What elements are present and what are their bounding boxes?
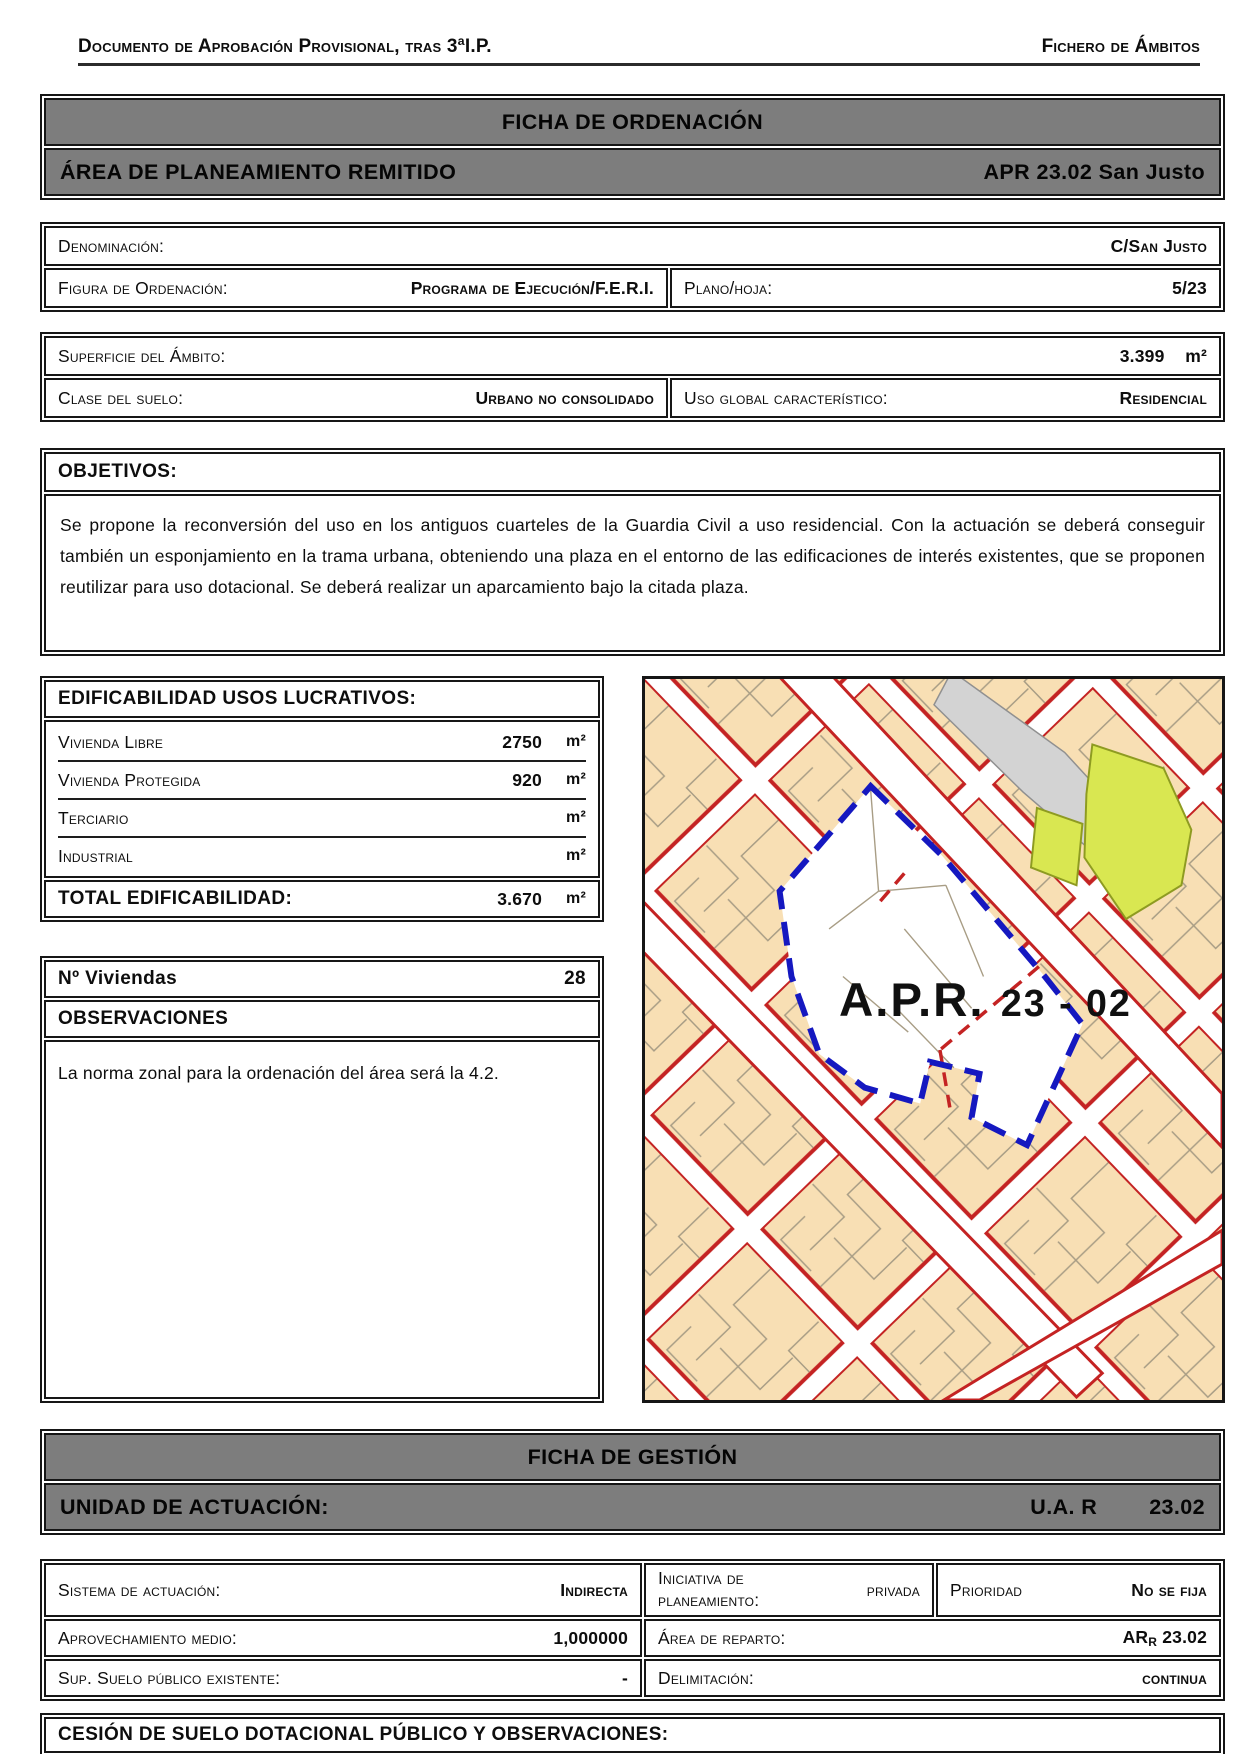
table-row: Industrial m²	[58, 836, 586, 874]
uso-global-label: Uso global característico:	[684, 388, 888, 409]
delimitacion-label: Delimitación:	[658, 1668, 754, 1689]
iniciativa-label: Iniciativa de planeamiento:	[658, 1568, 848, 1612]
ficha-gestion-banner: FICHA DE GESTIÓN UNIDAD DE ACTUACIÓN: U.…	[40, 1429, 1225, 1535]
left-column: EDIFICABILIDAD USOS LUCRATIVOS: Vivienda…	[40, 676, 604, 1403]
total-edificabilidad-label: TOTAL EDIFICABILIDAD:	[58, 888, 432, 910]
denominacion-label: Denominación:	[58, 236, 164, 257]
superficie-value: 3.399	[1120, 346, 1165, 366]
ficha-document-page: Documento de Aprobación Provisional, tra…	[0, 0, 1240, 1754]
superficie-unit: m²	[1185, 346, 1207, 366]
location-map: A.P.R. 23 - 02	[642, 676, 1225, 1403]
figura-plano-row: Figura de Ordenación: Programa de Ejecuc…	[44, 268, 1221, 308]
denominacion-row: Denominación: C/San Justo	[44, 226, 1221, 266]
uso-global-value: Residencial	[1119, 388, 1207, 409]
area-planeamiento-label: ÁREA DE PLANEAMIENTO REMITIDO	[60, 160, 456, 185]
prioridad-label: Prioridad	[950, 1580, 1022, 1601]
viviendas-observaciones-box: Nº Viviendas 28 OBSERVACIONES La norma z…	[40, 956, 604, 1403]
cesion-box: CESIÓN DE SUELO DOTACIONAL PÚBLICO Y OBS…	[40, 1713, 1225, 1754]
objetivos-title: OBJETIVOS:	[58, 461, 177, 483]
unidad-actuacion-band: UNIDAD DE ACTUACIÓN: U.A. R 23.02	[44, 1483, 1221, 1531]
ficha-ordenacion-title-band: FICHA DE ORDENACIÓN	[44, 98, 1221, 146]
figura-value: Programa de Ejecución/F.E.R.I.	[411, 278, 654, 299]
superficie-label: Superficie del Ámbito:	[58, 346, 225, 367]
vivienda-protegida-unit: m²	[542, 771, 586, 789]
ficha-ordenacion-title: FICHA DE ORDENACIÓN	[502, 110, 763, 135]
clase-suelo-label: Clase del suelo:	[58, 388, 183, 409]
objetivos-text: Se propone la reconversión del uso en lo…	[60, 510, 1205, 603]
aprovechamiento-value: 1,000000	[553, 1628, 628, 1649]
ua-number: 23.02	[1149, 1495, 1205, 1520]
ficha-gestion-title-band: FICHA DE GESTIÓN	[44, 1433, 1221, 1481]
suelo-table: Superficie del Ámbito: 3.399 m² Clase de…	[40, 332, 1225, 422]
area-reparto-value: ARR 23.02	[1123, 1627, 1207, 1649]
vivienda-libre-label: Vivienda Libre	[58, 732, 432, 753]
industrial-label: Industrial	[58, 846, 432, 867]
delimitacion-value: continua	[1142, 1668, 1207, 1689]
area-reparto-label: Área de reparto:	[658, 1628, 786, 1649]
superficie-row: Superficie del Ámbito: 3.399 m²	[44, 336, 1221, 376]
document-header: Documento de Aprobación Provisional, tra…	[78, 36, 1200, 66]
city-plan-map: A.P.R. 23 - 02	[645, 679, 1222, 1400]
suelo-publico-label: Sup. Suelo público existente:	[58, 1668, 280, 1689]
gestion-row-1: Sistema de actuación: Indirecta Iniciati…	[44, 1563, 1221, 1617]
edificabilidad-table: EDIFICABILIDAD USOS LUCRATIVOS: Vivienda…	[40, 676, 604, 922]
num-viviendas-label: Nº Viviendas	[58, 968, 177, 990]
denominacion-value: C/San Justo	[1111, 236, 1207, 257]
observaciones-text: La norma zonal para la ordenación del ár…	[58, 1058, 499, 1089]
table-row: Terciario m²	[58, 798, 586, 836]
area-planeamiento-band: ÁREA DE PLANEAMIENTO REMITIDO APR 23.02 …	[44, 148, 1221, 196]
ficha-ordenacion-banner: FICHA DE ORDENACIÓN ÁREA DE PLANEAMIENTO…	[40, 94, 1225, 200]
clase-uso-row: Clase del suelo: Urbano no consolidado U…	[44, 378, 1221, 418]
figura-label: Figura de Ordenación:	[58, 278, 228, 299]
mid-section: EDIFICABILIDAD USOS LUCRATIVOS: Vivienda…	[40, 676, 1225, 1403]
gestion-row-2: Aprovechamiento medio: 1,000000 Área de …	[44, 1619, 1221, 1657]
plano-value: 5/23	[1172, 278, 1207, 299]
observaciones-title: OBSERVACIONES	[58, 1008, 228, 1030]
vivienda-libre-value: 2750	[432, 732, 542, 753]
ficha-gestion-title: FICHA DE GESTIÓN	[528, 1445, 738, 1470]
cesion-title: CESIÓN DE SUELO DOTACIONAL PÚBLICO Y OBS…	[58, 1724, 669, 1746]
table-row: Vivienda Libre 2750 m²	[58, 724, 586, 760]
terciario-label: Terciario	[58, 808, 432, 829]
header-left-title: Documento de Aprobación Provisional, tra…	[78, 36, 492, 58]
gestion-row-3: Sup. Suelo público existente: - Delimita…	[44, 1659, 1221, 1697]
header-right-title: Fichero de Ámbitos	[1042, 36, 1200, 58]
total-edificabilidad-value: 3.670	[432, 889, 542, 910]
gestion-table: Sistema de actuación: Indirecta Iniciati…	[40, 1559, 1225, 1701]
total-edificabilidad-unit: m²	[542, 890, 586, 908]
plano-label: Plano/hoja:	[684, 278, 772, 299]
unidad-actuacion-label: UNIDAD DE ACTUACIÓN:	[60, 1495, 329, 1520]
sistema-actuacion-value: Indirecta	[560, 1580, 628, 1601]
objetivos-box: OBJETIVOS: Se propone la reconversión de…	[40, 448, 1225, 656]
table-row: Vivienda Protegida 920 m²	[58, 760, 586, 798]
sistema-actuacion-label: Sistema de actuación:	[58, 1580, 220, 1601]
apr-code: APR 23.02 San Justo	[984, 160, 1206, 185]
clase-suelo-value: Urbano no consolidado	[475, 388, 654, 409]
vivienda-libre-unit: m²	[542, 733, 586, 751]
num-viviendas-value: 28	[564, 968, 586, 990]
prioridad-value: No se fija	[1131, 1580, 1207, 1601]
edificabilidad-title: EDIFICABILIDAD USOS LUCRATIVOS:	[58, 688, 416, 710]
vivienda-protegida-value: 920	[432, 770, 542, 791]
industrial-unit: m²	[542, 847, 586, 865]
vivienda-protegida-label: Vivienda Protegida	[58, 770, 432, 791]
identificacion-table: Denominación: C/San Justo Figura de Orde…	[40, 222, 1225, 312]
iniciativa-value: privada	[867, 1580, 920, 1601]
terciario-unit: m²	[542, 809, 586, 827]
suelo-publico-value: -	[622, 1668, 628, 1689]
aprovechamiento-label: Aprovechamiento medio:	[58, 1628, 237, 1649]
ua-code: U.A. R	[1030, 1495, 1097, 1520]
